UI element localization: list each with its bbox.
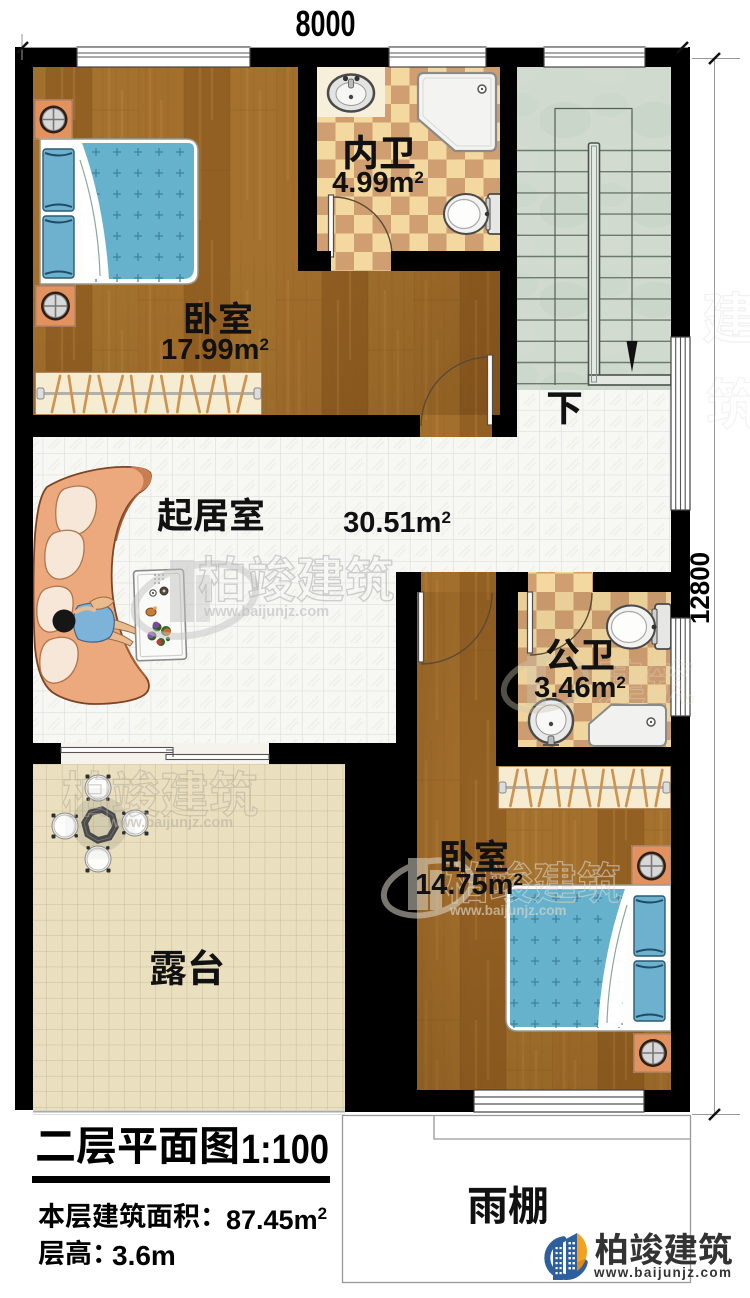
svg-text:30.51m2: 30.51m2 bbox=[343, 507, 451, 539]
svg-text:17.99m2: 17.99m2 bbox=[161, 334, 269, 366]
svg-text:8000: 8000 bbox=[296, 3, 356, 44]
svg-text:14.75m2: 14.75m2 bbox=[415, 869, 523, 901]
svg-text:87.45m2: 87.45m2 bbox=[226, 1204, 327, 1235]
svg-text:3.6m: 3.6m bbox=[112, 1240, 176, 1271]
svg-text:1:100: 1:100 bbox=[241, 1126, 329, 1172]
svg-text:www.baijunjz.com: www.baijunjz.com bbox=[203, 604, 329, 620]
svg-text:3.46m2: 3.46m2 bbox=[534, 672, 626, 704]
svg-text:www.baijunjz.com: www.baijunjz.com bbox=[449, 903, 567, 918]
svg-text:12800: 12800 bbox=[685, 552, 715, 624]
svg-text:www.baijunjz.com: www.baijunjz.com bbox=[593, 1265, 731, 1280]
svg-text:4.99m2: 4.99m2 bbox=[332, 167, 424, 199]
svg-text:www.baijunjz.com: www.baijunjz.com bbox=[107, 815, 233, 831]
